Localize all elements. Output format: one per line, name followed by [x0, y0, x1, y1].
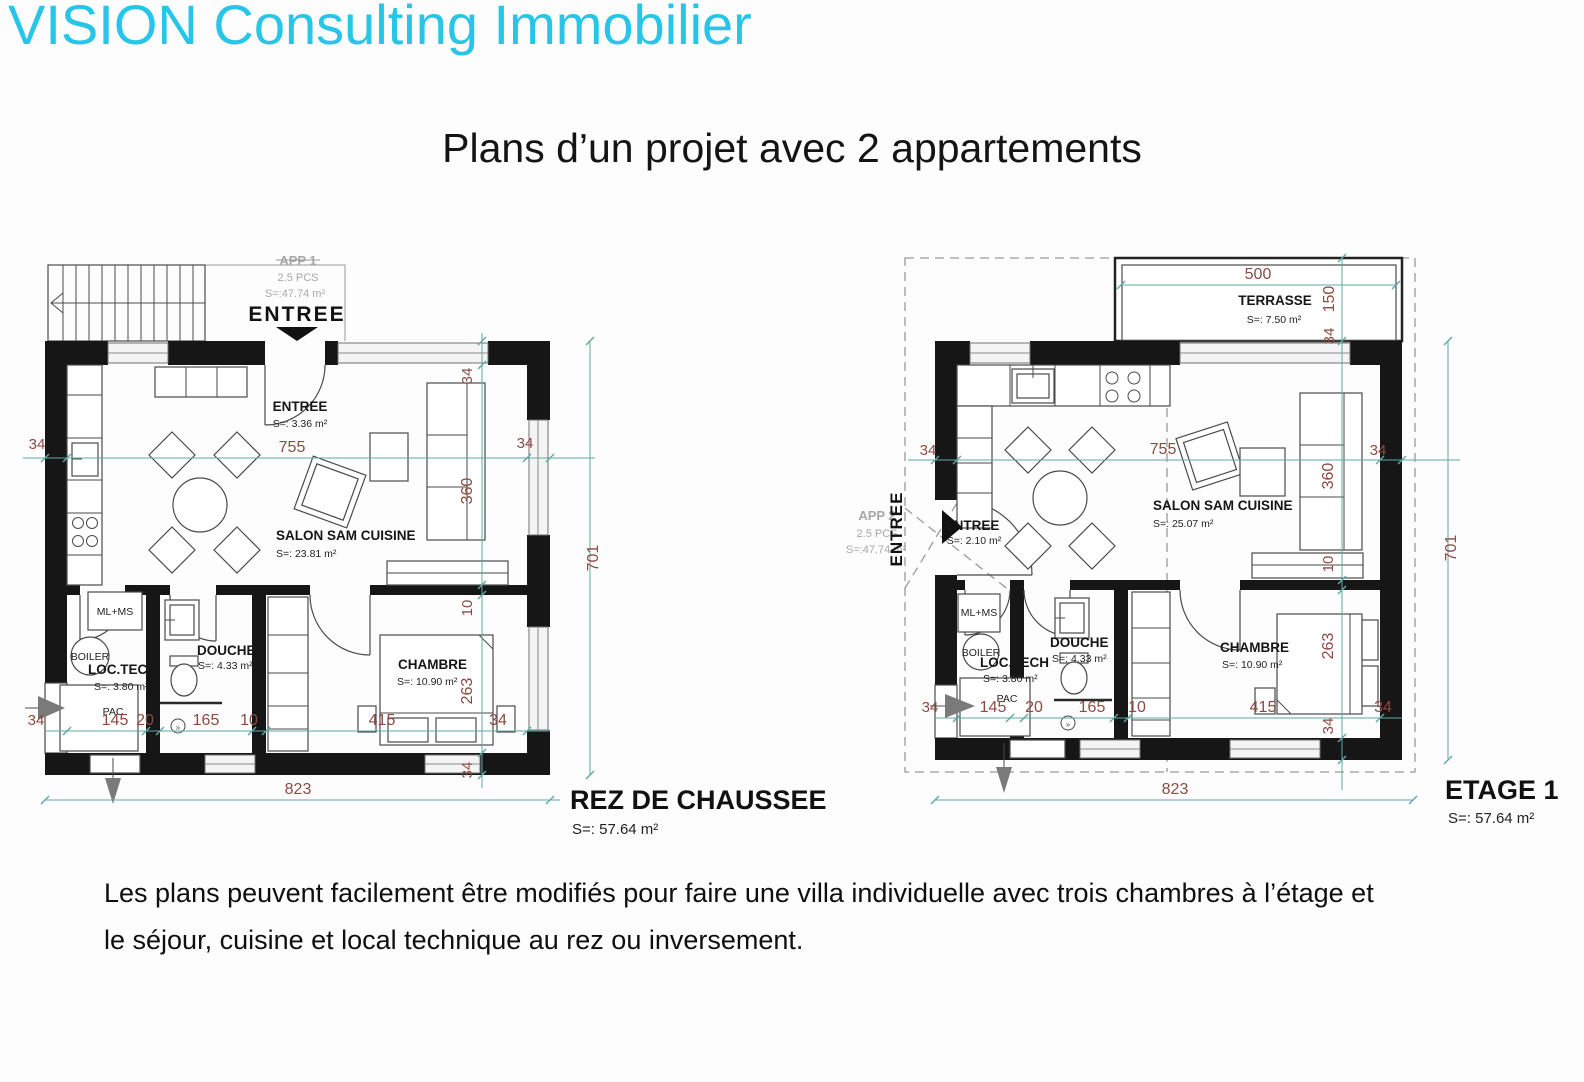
svg-text:34: 34	[1321, 328, 1338, 345]
footer-line-1: Les plans peuvent facilement être modifi…	[104, 870, 1374, 917]
plan-title-surface: S=: 57.64 m²	[1448, 810, 1534, 827]
svg-text:755: 755	[1150, 441, 1177, 458]
room-douche-surface: S=: 4.33 m²	[1052, 653, 1107, 665]
svg-text:34: 34	[920, 442, 937, 459]
svg-text:34: 34	[1320, 718, 1337, 735]
svg-text:10: 10	[459, 600, 476, 617]
page: VISION Consulting Immobilier Plans d’un …	[0, 0, 1584, 1082]
room-salon: SALON SAM CUISINE	[276, 528, 416, 543]
svg-text:415: 415	[1250, 699, 1277, 716]
room-loctech: LOC.TECH	[980, 655, 1049, 670]
app-pcs: 2.5 PCS	[278, 272, 319, 284]
room-terrasse-surface: S=: 7.50 m²	[1247, 314, 1302, 326]
coffee-table	[370, 433, 408, 481]
room-mlms: ML+MS	[961, 607, 997, 619]
svg-text:500: 500	[1245, 266, 1272, 283]
svg-text:701: 701	[585, 545, 602, 572]
coffee-table	[1240, 448, 1285, 496]
svg-text:10: 10	[1128, 699, 1146, 716]
dining-table	[1005, 427, 1115, 569]
room-loctech: LOC.TECH	[88, 662, 157, 677]
svg-text:165: 165	[193, 712, 220, 729]
room-salon-surface: S=: 25.07 m²	[1153, 518, 1214, 530]
brand-logo-text: VISION Consulting Immobilier	[8, 0, 752, 57]
entree-sign: ENTREE	[248, 303, 345, 326]
room-douche: DOUCHE	[1050, 635, 1109, 650]
room-entree: ENTREE	[273, 399, 328, 414]
svg-text:34: 34	[922, 699, 939, 716]
svg-text:755: 755	[279, 439, 306, 456]
armchair	[294, 456, 366, 528]
page-title: Plans d’un projet avec 2 appartements	[0, 125, 1584, 172]
svg-text:145: 145	[980, 699, 1007, 716]
room-loctech-surface: S=: 3.80 m²	[94, 681, 149, 693]
closet	[268, 597, 308, 751]
svg-text:34: 34	[28, 712, 45, 729]
svg-text:165: 165	[1079, 699, 1106, 716]
entree-sign-vertical: ENTREE	[887, 492, 906, 567]
room-terrasse: TERRASSE	[1238, 293, 1312, 308]
plan-title: ETAGE 1	[1445, 775, 1559, 805]
footer-line-2: le séjour, cuisine et local technique au…	[104, 917, 1374, 964]
floor-plan-rez-de-chaussee: »	[20, 248, 810, 848]
room-mlms: ML+MS	[97, 606, 133, 618]
room-entree-surface: S=: 2.10 m²	[947, 535, 1002, 547]
svg-text:701: 701	[1443, 535, 1460, 562]
bedroom-furniture	[1252, 553, 1378, 714]
room-entree: ENTREE	[945, 518, 1000, 533]
sofa	[427, 383, 485, 540]
room-chambre: CHAMBRE	[1220, 640, 1289, 655]
svg-text:150: 150	[1321, 286, 1338, 313]
svg-text:263: 263	[459, 678, 476, 705]
plan-title: REZ DE CHAUSSEE	[570, 785, 827, 815]
svg-text:10: 10	[1320, 556, 1337, 573]
dining-table	[149, 432, 260, 573]
svg-text:360: 360	[1320, 463, 1337, 490]
svg-text:415: 415	[369, 712, 396, 729]
room-entree-surface: S=: 3.36 m²	[273, 418, 328, 430]
svg-text:34: 34	[459, 762, 476, 779]
svg-text:34: 34	[459, 368, 476, 385]
svg-text:34: 34	[29, 436, 46, 453]
apartment-label: APP 1 2.5 PCS S=:47.74 m²	[265, 253, 326, 300]
floor-plan-etage-1: »	[850, 248, 1580, 848]
svg-text:34: 34	[1374, 699, 1392, 716]
room-chambre-surface: S=: 10.90 m²	[1222, 659, 1283, 671]
svg-text:34: 34	[489, 712, 507, 729]
footer-note: Les plans peuvent facilement être modifi…	[104, 870, 1374, 964]
door-arrow-down	[996, 767, 1012, 793]
svg-text:360: 360	[459, 478, 476, 505]
entree-sign-arrow	[276, 327, 318, 341]
app-surface: S=:47.74 m²	[265, 288, 326, 300]
armchair	[1176, 422, 1244, 490]
svg-text:823: 823	[285, 781, 312, 798]
svg-text:10: 10	[240, 712, 258, 729]
svg-text:263: 263	[1320, 633, 1337, 660]
svg-text:34: 34	[517, 435, 534, 452]
room-douche: DOUCHE	[197, 643, 256, 658]
svg-text:34: 34	[1370, 442, 1387, 459]
plan-title-surface: S=: 57.64 m²	[572, 821, 658, 838]
room-loctech-surface: S=: 3.80 m²	[983, 673, 1038, 685]
room-douche-surface: S=: 4.33 m²	[198, 660, 253, 672]
svg-text:823: 823	[1162, 781, 1189, 798]
svg-text:20: 20	[1025, 699, 1043, 716]
svg-text:20: 20	[136, 712, 154, 729]
svg-text:»: »	[1066, 720, 1071, 729]
room-salon-surface: S=: 23.81 m²	[276, 548, 337, 560]
room-salon: SALON SAM CUISINE	[1153, 498, 1293, 513]
room-chambre: CHAMBRE	[398, 657, 467, 672]
room-chambre-surface: S=: 10.90 m²	[397, 676, 458, 688]
svg-text:145: 145	[102, 712, 129, 729]
